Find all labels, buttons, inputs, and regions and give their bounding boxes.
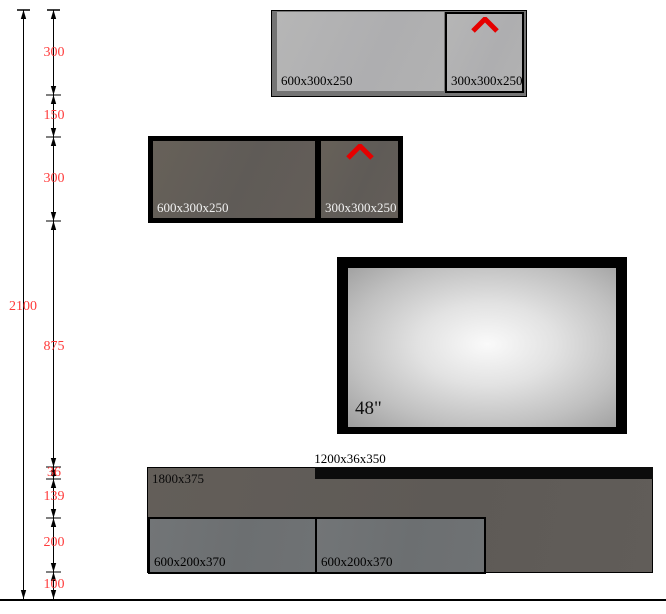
dim-segment-label: 150	[44, 108, 65, 124]
door-open-up-icon	[471, 17, 499, 33]
base-shelf-label: 1200x36x350	[313, 452, 387, 466]
middle-cabinet-right-unit: 300x300x250	[321, 141, 398, 218]
middle-cabinet: 600x300x250 300x300x250	[148, 136, 403, 223]
dim-segment-label: 300	[44, 171, 65, 187]
dim-segment-label: 100	[44, 577, 65, 593]
dim-segment-label: 875	[44, 339, 65, 355]
upper-cabinet: 600x300x250 300x300x250	[271, 10, 527, 97]
tv-size-label: 48"	[355, 399, 382, 419]
upper-cabinet-right-unit: 300x300x250	[445, 12, 524, 93]
unit-size-label: 600x300x250	[281, 74, 353, 88]
drawer-size-label: 600x200x370	[154, 555, 226, 569]
drawer-left: 600x200x370	[148, 517, 317, 574]
base-shelf-bar	[315, 467, 653, 479]
unit-size-label: 300x300x250	[325, 201, 397, 215]
upper-cabinet-left-unit: 600x300x250	[277, 12, 444, 91]
dim-segment-label: 36	[47, 465, 61, 481]
drawer-right: 600x200x370	[315, 517, 486, 574]
unit-size-label: 300x300x250	[451, 74, 523, 88]
tv: 48"	[337, 257, 627, 434]
middle-cabinet-left-unit: 600x300x250	[153, 141, 315, 218]
dim-segment-label: 300	[44, 45, 65, 61]
dim-overall-label: 2100	[9, 299, 37, 315]
drawer-size-label: 600x200x370	[321, 555, 393, 569]
unit-size-label: 600x300x250	[157, 201, 229, 215]
drawing-canvas: 2100 300 150 300 875 36 139 200 100 600x…	[0, 0, 666, 614]
dim-segment-label: 200	[44, 535, 65, 551]
door-open-up-icon	[346, 144, 374, 160]
base-panel-label: 1800x375	[152, 472, 204, 486]
tv-screen: 48"	[348, 268, 616, 427]
dim-segment-label: 139	[44, 489, 65, 505]
